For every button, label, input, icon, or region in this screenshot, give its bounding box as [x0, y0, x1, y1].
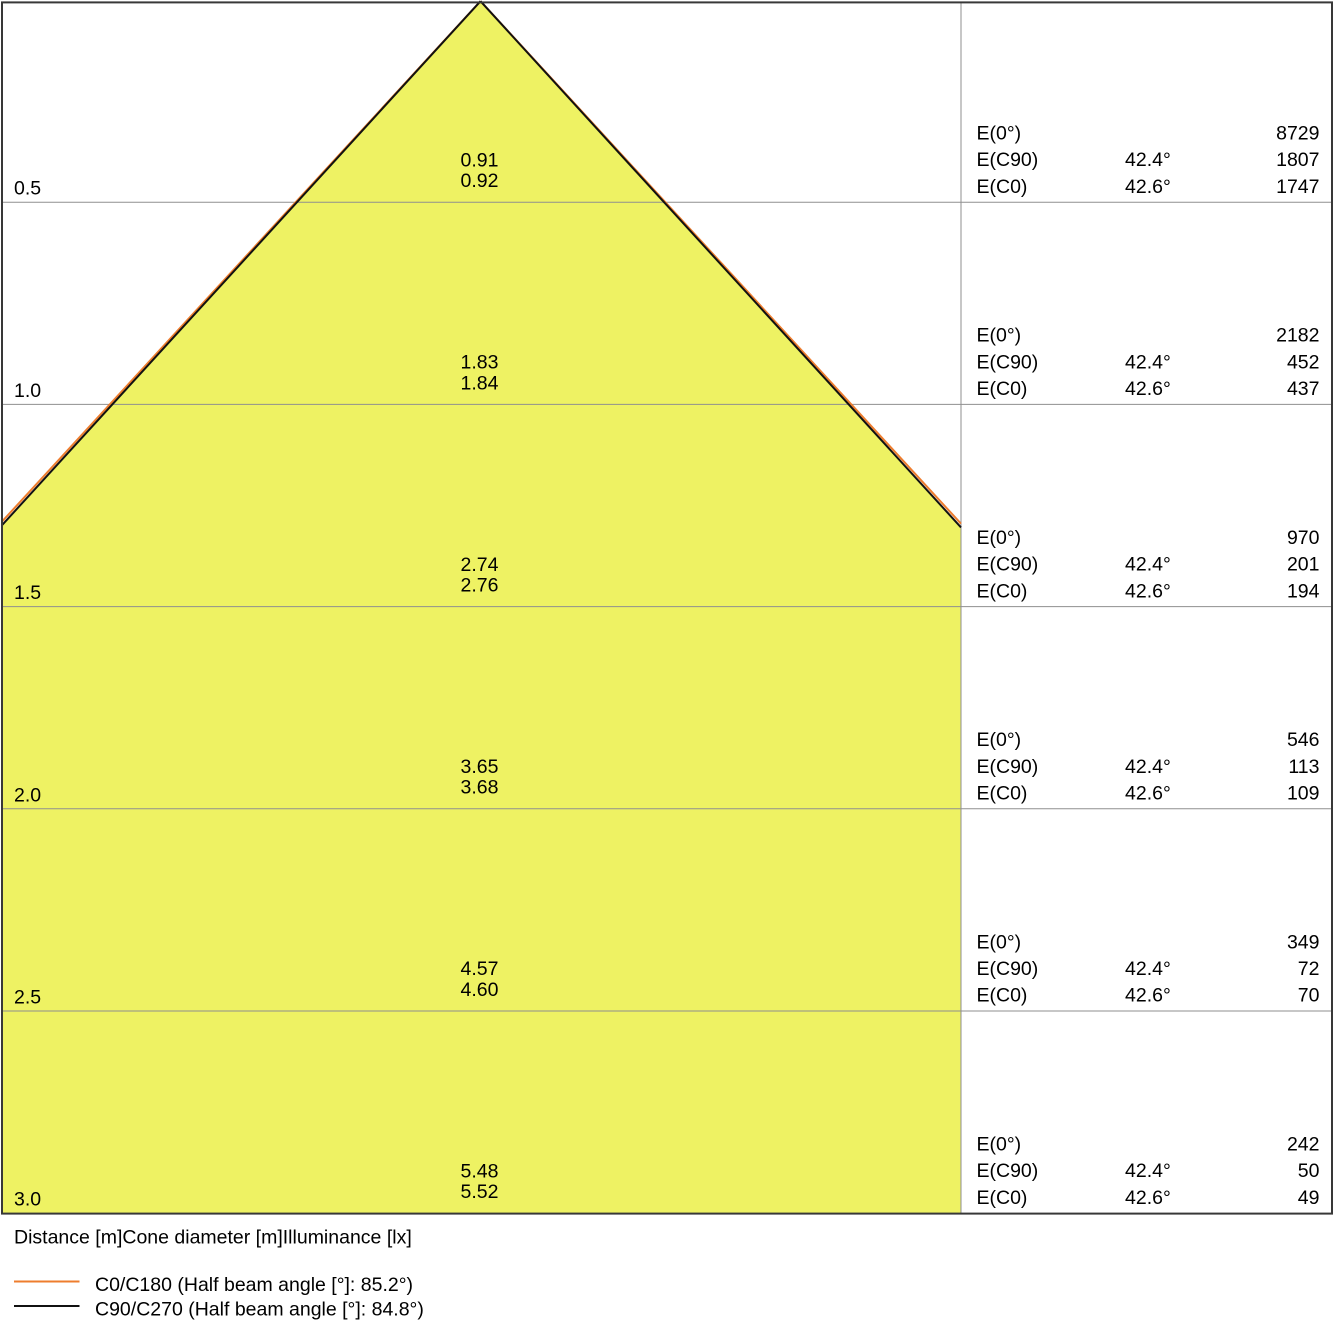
svg-text:E(C90): E(C90) [977, 351, 1039, 373]
svg-text:E(0°): E(0°) [977, 325, 1022, 347]
svg-text:8729: 8729 [1276, 123, 1319, 145]
svg-text:0.5: 0.5 [14, 178, 41, 200]
svg-text:E(0°): E(0°) [977, 527, 1022, 549]
svg-text:E(C0): E(C0) [977, 580, 1028, 602]
svg-text:42.4°: 42.4° [1125, 1160, 1171, 1182]
svg-text:E(C90): E(C90) [977, 1160, 1039, 1182]
svg-text:42.6°: 42.6° [1125, 580, 1171, 602]
svg-text:1.0: 1.0 [14, 380, 41, 402]
svg-text:1747: 1747 [1276, 176, 1319, 198]
svg-text:E(C90): E(C90) [977, 756, 1039, 778]
svg-text:42.4°: 42.4° [1125, 149, 1171, 171]
svg-text:1807: 1807 [1276, 149, 1319, 171]
svg-text:194: 194 [1287, 580, 1320, 602]
svg-text:5.48: 5.48 [461, 1160, 499, 1182]
svg-text:E(0°): E(0°) [977, 1134, 1022, 1156]
svg-text:42.4°: 42.4° [1125, 958, 1171, 980]
svg-text:2.5: 2.5 [14, 987, 41, 1009]
svg-text:242: 242 [1287, 1134, 1320, 1156]
svg-text:E(0°): E(0°) [977, 729, 1022, 751]
svg-text:42.6°: 42.6° [1125, 1187, 1171, 1209]
svg-text:E(C90): E(C90) [977, 149, 1039, 171]
svg-text:2.74: 2.74 [461, 554, 499, 576]
svg-text:4.60: 4.60 [461, 979, 499, 1001]
svg-text:E(C90): E(C90) [977, 554, 1039, 576]
svg-text:970: 970 [1287, 527, 1320, 549]
svg-text:0.92: 0.92 [461, 170, 499, 192]
svg-text:E(C0): E(C0) [977, 1187, 1028, 1209]
svg-text:42.6°: 42.6° [1125, 985, 1171, 1007]
svg-text:E(0°): E(0°) [977, 931, 1022, 953]
svg-text:42.4°: 42.4° [1125, 554, 1171, 576]
svg-text:1.5: 1.5 [14, 582, 41, 604]
svg-text:3.68: 3.68 [461, 777, 499, 799]
svg-text:C90/C270 (Half beam angle [°]:: C90/C270 (Half beam angle [°]: 84.8°) [95, 1299, 424, 1321]
svg-text:70: 70 [1298, 985, 1320, 1007]
svg-text:50: 50 [1298, 1160, 1320, 1182]
svg-text:109: 109 [1287, 783, 1320, 805]
svg-text:72: 72 [1298, 958, 1320, 980]
svg-text:E(0°): E(0°) [977, 123, 1022, 145]
svg-text:E(C0): E(C0) [977, 378, 1028, 400]
svg-text:Distance [m]Cone diameter [m]I: Distance [m]Cone diameter [m]Illuminance… [14, 1226, 412, 1248]
svg-text:42.4°: 42.4° [1125, 351, 1171, 373]
svg-text:E(C0): E(C0) [977, 985, 1028, 1007]
svg-text:546: 546 [1287, 729, 1320, 751]
svg-text:42.4°: 42.4° [1125, 756, 1171, 778]
svg-text:E(C0): E(C0) [977, 783, 1028, 805]
svg-text:2182: 2182 [1276, 325, 1319, 347]
svg-text:E(C0): E(C0) [977, 176, 1028, 198]
svg-text:1.84: 1.84 [461, 372, 499, 394]
svg-text:113: 113 [1288, 756, 1319, 778]
svg-text:349: 349 [1287, 931, 1320, 953]
svg-text:0.91: 0.91 [461, 149, 499, 171]
svg-text:437: 437 [1287, 378, 1320, 400]
svg-text:42.6°: 42.6° [1125, 176, 1171, 198]
svg-text:3.0: 3.0 [14, 1189, 41, 1211]
svg-text:2.76: 2.76 [461, 575, 499, 597]
svg-text:2.0: 2.0 [14, 784, 41, 806]
svg-text:3.65: 3.65 [461, 756, 499, 778]
svg-text:452: 452 [1287, 351, 1320, 373]
svg-text:1.83: 1.83 [461, 352, 499, 374]
svg-text:4.57: 4.57 [461, 958, 499, 980]
svg-text:49: 49 [1298, 1187, 1320, 1209]
svg-text:5.52: 5.52 [461, 1181, 499, 1203]
svg-text:201: 201 [1287, 554, 1320, 576]
svg-text:42.6°: 42.6° [1125, 783, 1171, 805]
svg-text:C0/C180 (Half beam angle [°]:: C0/C180 (Half beam angle [°]: 85.2°) [95, 1274, 413, 1296]
svg-text:42.6°: 42.6° [1125, 378, 1171, 400]
svg-text:E(C90): E(C90) [977, 958, 1039, 980]
